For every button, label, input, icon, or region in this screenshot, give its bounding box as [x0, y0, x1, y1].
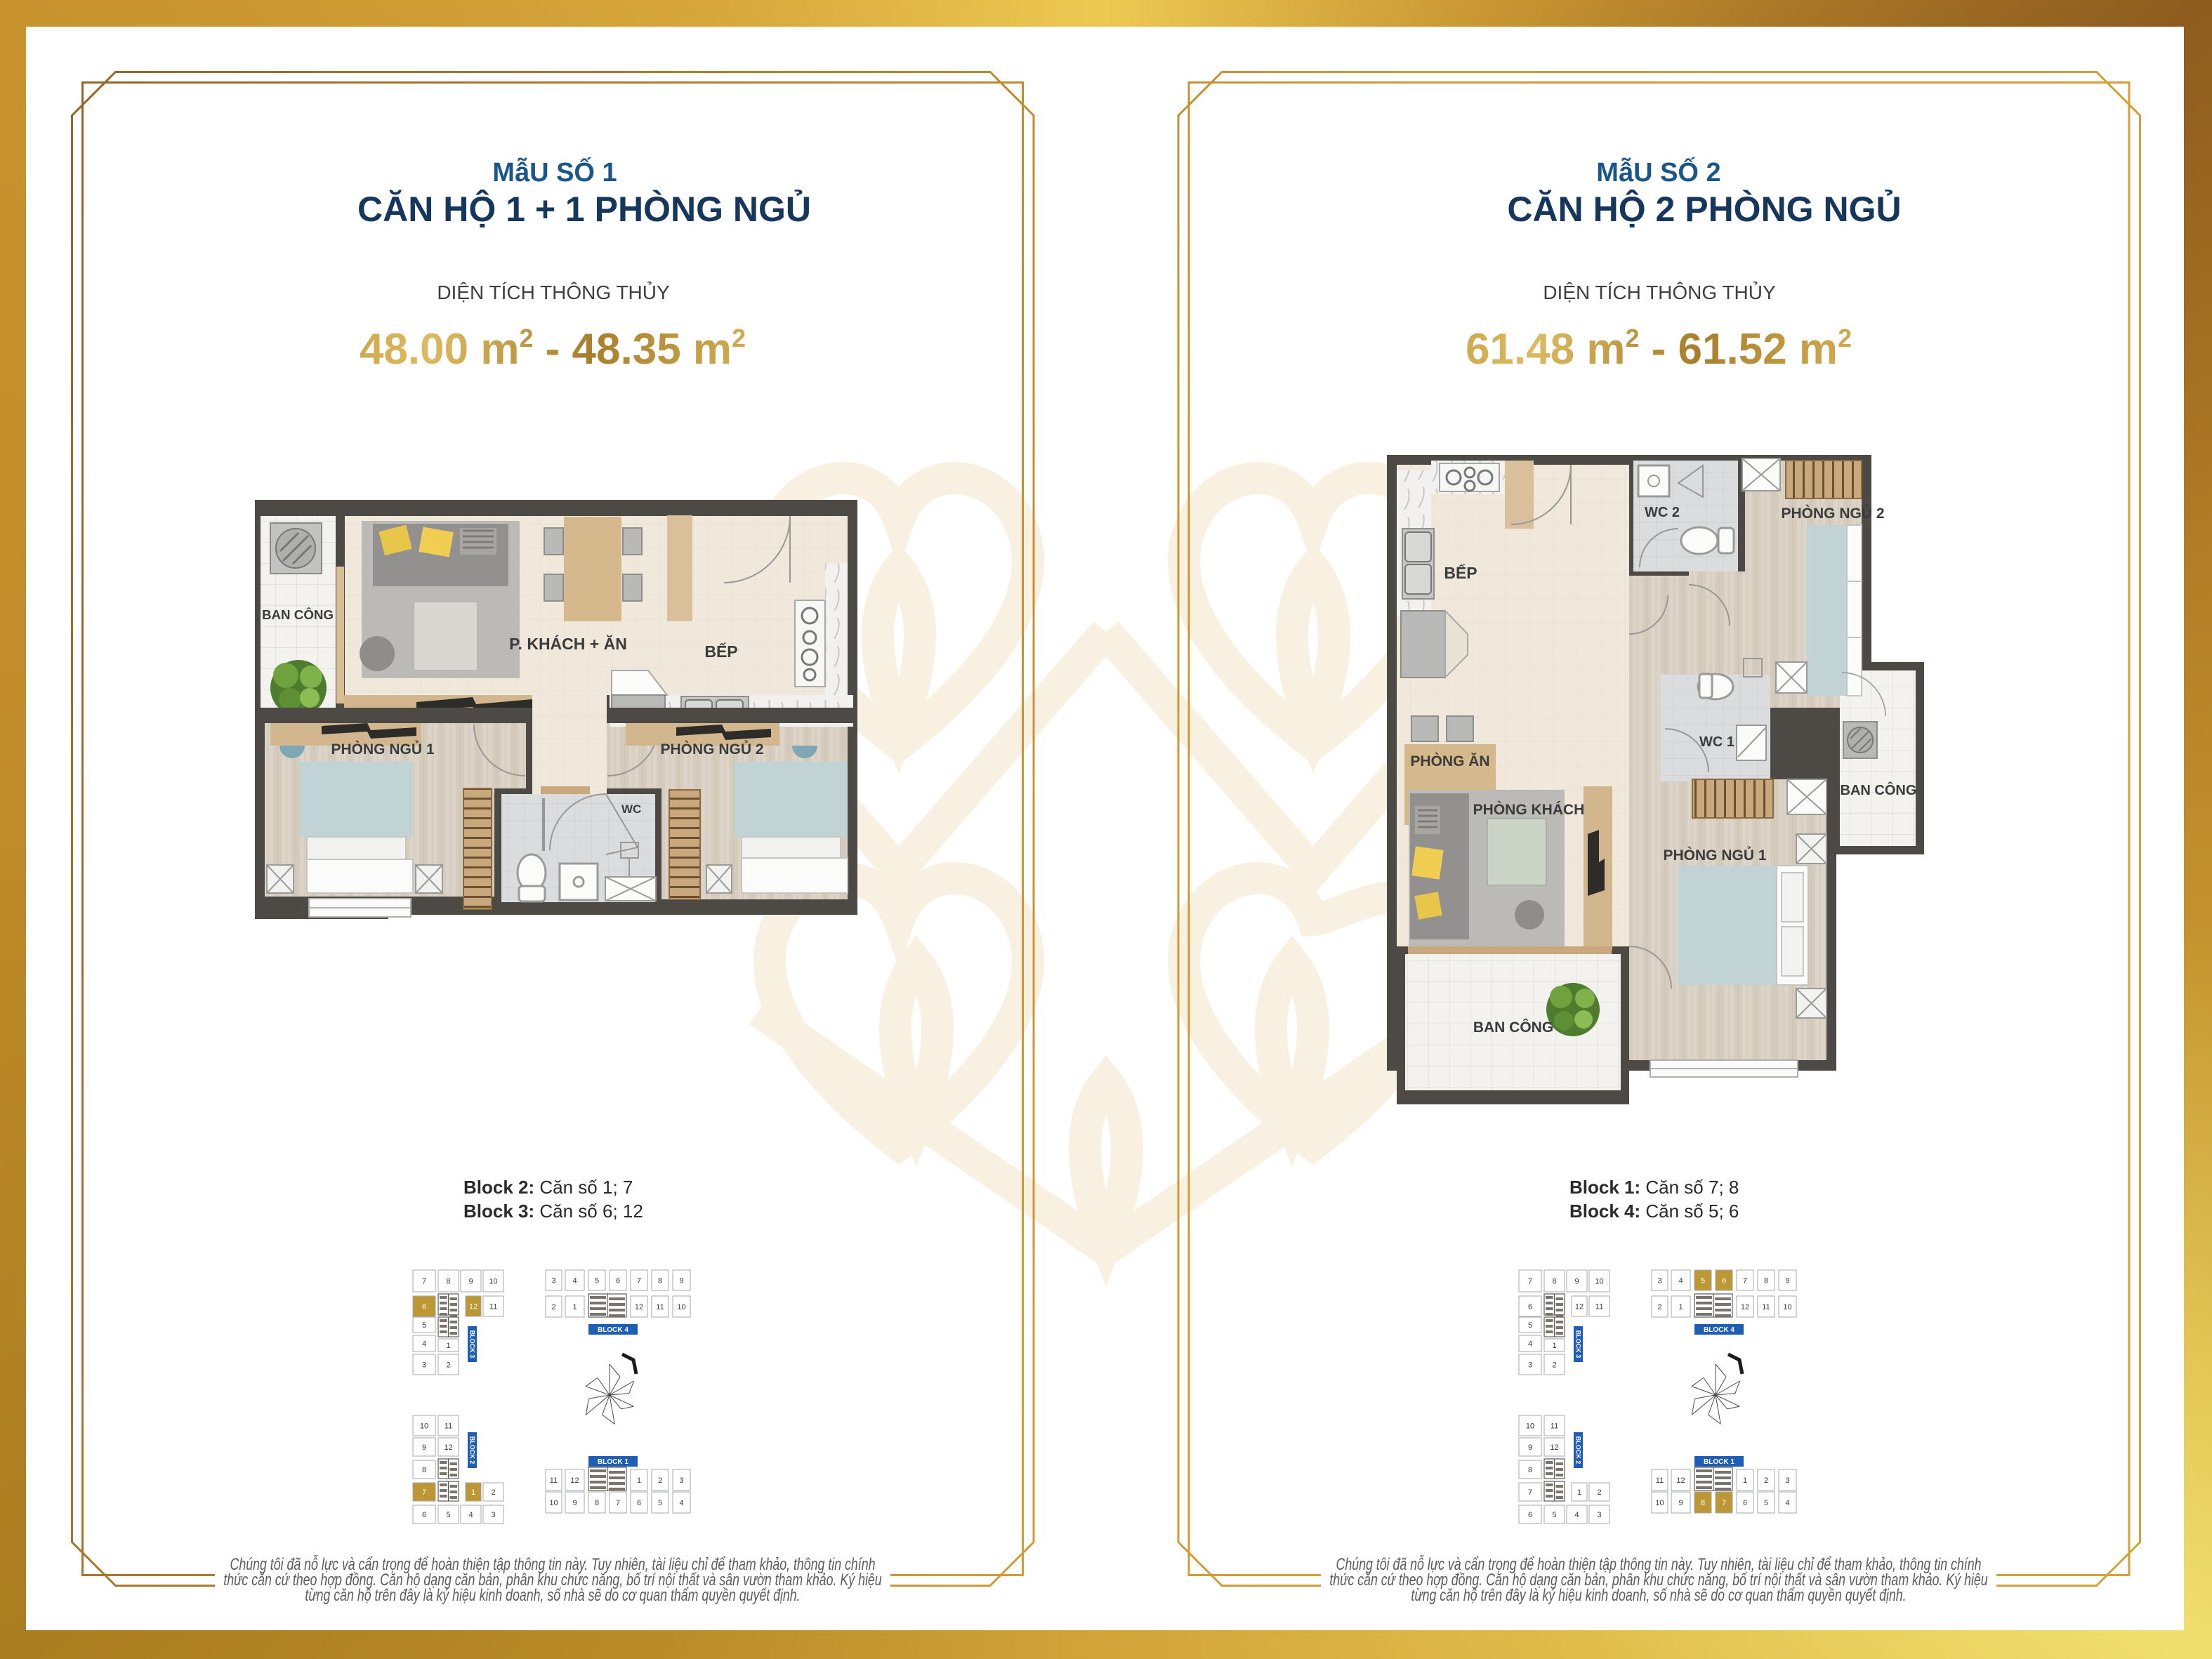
svg-text:11: 11: [1656, 1476, 1664, 1485]
svg-text:6: 6: [422, 1303, 426, 1311]
svg-text:5: 5: [422, 1321, 426, 1330]
svg-text:7: 7: [637, 1277, 641, 1285]
svg-text:9: 9: [1528, 1443, 1532, 1452]
svg-text:9: 9: [1678, 1499, 1683, 1507]
svg-text:8: 8: [1764, 1277, 1768, 1285]
svg-text:11: 11: [1595, 1303, 1603, 1311]
svg-text:8: 8: [595, 1499, 599, 1507]
svg-text:BAN CÔNG: BAN CÔNG: [1841, 781, 1917, 798]
svg-text:6: 6: [422, 1511, 426, 1519]
svg-text:WC 2: WC 2: [1645, 505, 1680, 520]
svg-text:3: 3: [1528, 1361, 1532, 1370]
svg-text:2: 2: [551, 1303, 555, 1311]
svg-text:8: 8: [658, 1277, 662, 1285]
svg-text:12: 12: [635, 1303, 643, 1311]
svg-text:4: 4: [1528, 1340, 1532, 1349]
svg-text:BLOCK 2: BLOCK 2: [469, 1436, 476, 1465]
svg-text:PHÒNG NGỦ 2: PHÒNG NGỦ 2: [660, 741, 763, 758]
svg-text:8: 8: [446, 1278, 450, 1286]
svg-text:PHÒNG KHÁCH: PHÒNG KHÁCH: [1473, 801, 1585, 818]
svg-text:7: 7: [1528, 1488, 1532, 1497]
svg-text:4: 4: [679, 1499, 683, 1507]
svg-text:12: 12: [1575, 1303, 1584, 1311]
svg-text:4: 4: [1574, 1511, 1579, 1519]
svg-text:9: 9: [468, 1278, 473, 1286]
svg-text:5: 5: [1764, 1499, 1768, 1507]
svg-text:2: 2: [1657, 1303, 1661, 1311]
svg-text:11: 11: [1762, 1303, 1770, 1311]
svg-text:4: 4: [1785, 1499, 1789, 1507]
svg-text:1: 1: [1743, 1476, 1747, 1485]
svg-text:7: 7: [1528, 1278, 1532, 1286]
svg-text:PHÒNG NGỦ 1: PHÒNG NGỦ 1: [1663, 847, 1766, 864]
svg-text:12: 12: [570, 1476, 579, 1485]
svg-text:2: 2: [446, 1361, 450, 1370]
svg-text:4: 4: [1678, 1277, 1683, 1285]
svg-text:P. KHÁCH + ĂN: P. KHÁCH + ĂN: [509, 634, 627, 653]
svg-text:9: 9: [679, 1277, 683, 1285]
svg-text:1: 1: [446, 1342, 450, 1350]
svg-text:9: 9: [572, 1499, 577, 1507]
svg-text:11: 11: [489, 1303, 497, 1311]
svg-text:3: 3: [422, 1361, 426, 1370]
svg-text:4: 4: [572, 1277, 577, 1285]
svg-text:11: 11: [445, 1422, 452, 1431]
svg-text:PHÒNG NGỦ 2: PHÒNG NGỦ 2: [1781, 505, 1884, 522]
svg-text:8: 8: [422, 1466, 426, 1474]
svg-text:9: 9: [1785, 1277, 1789, 1285]
svg-text:2: 2: [1552, 1361, 1556, 1370]
svg-text:1: 1: [1552, 1342, 1556, 1350]
svg-text:5: 5: [1701, 1277, 1705, 1285]
svg-text:BLOCK 4: BLOCK 4: [598, 1326, 628, 1334]
svg-text:8: 8: [1701, 1499, 1705, 1507]
svg-text:10: 10: [1595, 1278, 1603, 1286]
svg-text:9: 9: [1574, 1278, 1579, 1286]
svg-text:12: 12: [1676, 1476, 1685, 1485]
svg-text:8: 8: [1552, 1278, 1556, 1286]
svg-text:BAN CÔNG: BAN CÔNG: [1473, 1019, 1553, 1036]
svg-text:7: 7: [422, 1488, 426, 1497]
svg-text:10: 10: [420, 1422, 428, 1431]
svg-text:BLOCK 3: BLOCK 3: [469, 1330, 476, 1359]
svg-text:3: 3: [679, 1476, 683, 1485]
svg-text:8: 8: [1528, 1466, 1532, 1474]
svg-text:11: 11: [656, 1303, 664, 1311]
svg-text:1: 1: [471, 1488, 475, 1497]
svg-text:4: 4: [422, 1340, 426, 1349]
svg-text:WC: WC: [621, 802, 641, 816]
svg-text:12: 12: [1550, 1443, 1558, 1452]
svg-text:6: 6: [1743, 1499, 1747, 1507]
svg-text:5: 5: [595, 1277, 599, 1285]
svg-text:2: 2: [491, 1488, 495, 1497]
svg-text:1: 1: [1678, 1303, 1683, 1311]
svg-text:10: 10: [549, 1499, 558, 1507]
svg-text:2: 2: [658, 1476, 662, 1485]
svg-text:12: 12: [444, 1443, 452, 1452]
svg-text:10: 10: [1655, 1499, 1664, 1507]
svg-text:11: 11: [1551, 1422, 1558, 1431]
svg-text:7: 7: [1743, 1277, 1747, 1285]
svg-text:BLOCK 1: BLOCK 1: [598, 1458, 628, 1466]
svg-text:BẾP: BẾP: [1444, 563, 1477, 582]
svg-text:9: 9: [422, 1443, 426, 1452]
svg-text:BAN CÔNG: BAN CÔNG: [262, 607, 334, 622]
svg-text:2: 2: [1764, 1476, 1768, 1485]
svg-text:6: 6: [1722, 1277, 1726, 1285]
svg-text:7: 7: [422, 1278, 426, 1286]
svg-text:BLOCK 3: BLOCK 3: [1575, 1330, 1582, 1359]
svg-text:5: 5: [1528, 1321, 1532, 1330]
svg-text:BLOCK 2: BLOCK 2: [1575, 1436, 1582, 1465]
svg-text:12: 12: [1741, 1303, 1749, 1311]
svg-text:1: 1: [1577, 1488, 1581, 1497]
svg-text:BLOCK 1: BLOCK 1: [1704, 1458, 1734, 1466]
svg-text:1: 1: [637, 1476, 641, 1485]
svg-text:12: 12: [469, 1303, 478, 1311]
svg-text:6: 6: [1528, 1511, 1532, 1519]
svg-text:10: 10: [489, 1278, 497, 1286]
svg-text:3: 3: [1597, 1511, 1601, 1519]
svg-text:10: 10: [677, 1303, 685, 1311]
svg-text:WC 1: WC 1: [1699, 734, 1734, 750]
svg-text:3: 3: [1785, 1476, 1789, 1485]
svg-text:2: 2: [1597, 1488, 1601, 1497]
svg-text:3: 3: [551, 1277, 555, 1285]
svg-text:BẾP: BẾP: [704, 642, 737, 661]
svg-text:7: 7: [1722, 1499, 1726, 1507]
svg-text:6: 6: [616, 1277, 620, 1285]
svg-text:4: 4: [468, 1511, 473, 1519]
svg-text:10: 10: [1526, 1422, 1534, 1431]
svg-text:5: 5: [1552, 1511, 1556, 1519]
svg-text:5: 5: [446, 1511, 450, 1519]
svg-text:11: 11: [550, 1476, 558, 1485]
svg-text:PHÒNG NGỦ 1: PHÒNG NGỦ 1: [331, 741, 434, 758]
svg-text:5: 5: [658, 1499, 662, 1507]
svg-text:6: 6: [637, 1499, 641, 1507]
svg-text:PHÒNG ĂN: PHÒNG ĂN: [1410, 753, 1489, 769]
svg-text:6: 6: [1528, 1303, 1532, 1311]
svg-text:BLOCK 4: BLOCK 4: [1704, 1326, 1734, 1334]
svg-text:1: 1: [572, 1303, 577, 1311]
svg-text:3: 3: [1657, 1277, 1661, 1285]
svg-text:10: 10: [1783, 1303, 1791, 1311]
svg-text:3: 3: [491, 1511, 495, 1519]
svg-text:7: 7: [616, 1499, 620, 1507]
